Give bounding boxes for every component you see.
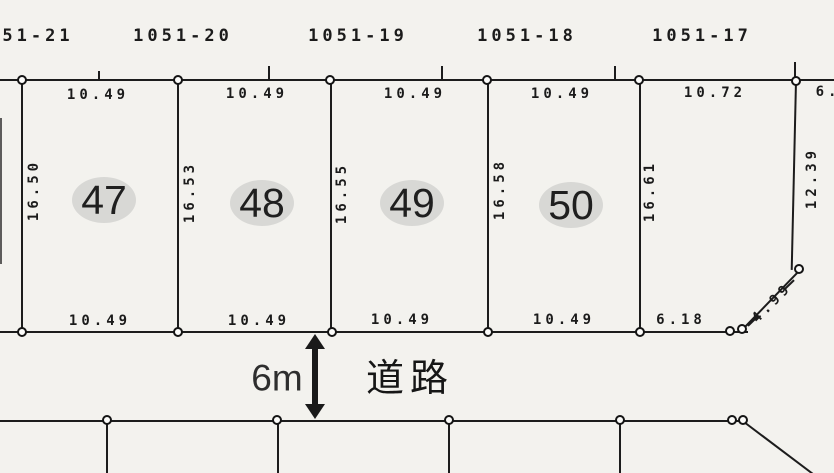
dimension-label: 10.49: [69, 313, 131, 329]
lot-label: 1051-18: [477, 26, 577, 46]
vertex-marker: [17, 327, 27, 337]
parcel-number: 47: [81, 180, 127, 221]
road-name-label: 道路: [366, 360, 454, 398]
parcel-50-west-line: [487, 81, 489, 332]
dimension-label: 16.58: [492, 158, 508, 220]
south-parcel-line: [619, 422, 621, 473]
parcel-number-badge: 47: [72, 177, 136, 223]
vertex-marker: [615, 415, 625, 425]
vertex-marker: [173, 75, 183, 85]
lot-division-tick: [441, 66, 443, 80]
parcel-number: 50: [548, 185, 594, 226]
vertex-marker: [737, 324, 747, 334]
vertex-marker: [325, 75, 335, 85]
east-parcel-west-line: [639, 81, 641, 332]
lot-label: 1051-20: [133, 26, 233, 46]
dimension-label: 10.49: [384, 86, 446, 102]
scan-edge-artifact: [0, 118, 2, 264]
lot-label: 1051-17: [652, 26, 752, 46]
vertex-marker: [483, 327, 493, 337]
parcel-number: 49: [389, 183, 435, 224]
parcel-number: 48: [239, 183, 285, 224]
chamfer-dimension-label: 4.99: [749, 280, 795, 326]
parcel-49-west-line: [330, 81, 332, 333]
top-boundary-line: [0, 79, 834, 81]
arrow-down-icon: [305, 404, 325, 419]
vertex-marker: [791, 76, 801, 86]
vertex-marker: [635, 327, 645, 337]
lot-division-tick: [98, 71, 100, 80]
dimension-label: 10.49: [531, 86, 593, 102]
dimension-label: 10.49: [67, 87, 129, 103]
parcel-number-badge: 49: [380, 180, 444, 226]
arrow-up-icon: [305, 334, 325, 349]
dimension-label: 10.49: [533, 312, 595, 328]
dimension-label: 16.53: [182, 161, 198, 223]
road-width-label: 6m: [251, 360, 302, 397]
south-chamfer-line: [743, 421, 813, 473]
vertex-marker: [17, 75, 27, 85]
dimension-label: 16.61: [642, 160, 658, 222]
vertex-marker: [738, 415, 748, 425]
dimension-label: 6.: [816, 84, 834, 100]
road-width-arrow: [312, 347, 318, 407]
dimension-label: 6.18: [656, 312, 706, 328]
parcel-number-badge: 48: [230, 180, 294, 226]
lot-label: 1051-19: [308, 26, 408, 46]
dimension-label: 10.72: [684, 85, 746, 101]
dimension-label: 16.50: [26, 159, 42, 221]
vertex-marker: [794, 264, 804, 274]
lot-division-tick: [268, 66, 270, 80]
east-parcel-east-line: [791, 81, 797, 270]
vertex-marker: [725, 326, 735, 336]
vertex-marker: [173, 327, 183, 337]
dimension-label: 10.49: [228, 313, 290, 329]
dimension-label: 10.49: [371, 312, 433, 328]
south-parcel-line: [448, 422, 450, 473]
lot-division-tick: [614, 66, 616, 80]
parcel-47-west-line: [21, 81, 23, 332]
vertex-marker: [634, 75, 644, 85]
vertex-marker: [102, 415, 112, 425]
vertex-marker: [444, 415, 454, 425]
dimension-label: 12.39: [804, 147, 820, 209]
dimension-label: 10.49: [226, 86, 288, 102]
dimension-label: 16.55: [334, 162, 350, 224]
south-parcel-line: [277, 422, 279, 473]
parcel-48-west-line: [177, 81, 179, 332]
vertex-marker: [727, 415, 737, 425]
cadastral-survey-map: 51-21 1051-20 1051-19 1051-18 1051-17: [0, 0, 834, 473]
parcel-number-badge: 50: [539, 182, 603, 228]
vertex-marker: [327, 327, 337, 337]
vertex-marker: [482, 75, 492, 85]
lot-label: 51-21: [2, 26, 73, 46]
vertex-marker: [272, 415, 282, 425]
south-parcel-line: [106, 422, 108, 473]
